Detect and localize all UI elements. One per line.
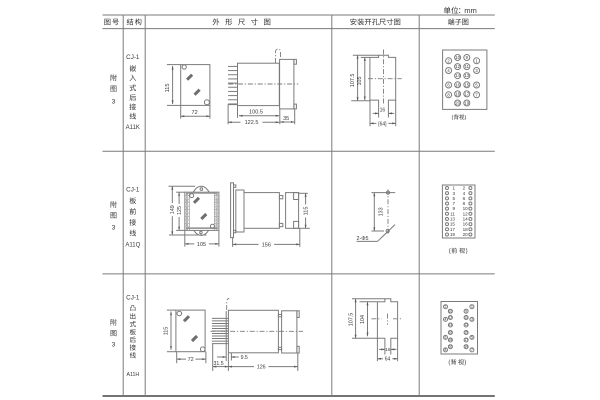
svg-text:[64]: [64] <box>378 121 387 127</box>
svg-text:(: ( <box>448 360 450 366</box>
svg-text:6: 6 <box>447 82 450 87</box>
svg-text:31.5: 31.5 <box>214 361 224 367</box>
svg-text:6: 6 <box>445 336 447 340</box>
svg-text:10: 10 <box>455 55 460 60</box>
svg-text:3: 3 <box>475 68 478 73</box>
svg-text:A11H: A11H <box>127 372 140 378</box>
svg-text:149: 149 <box>170 205 176 214</box>
svg-text:104: 104 <box>360 315 366 324</box>
svg-text:18: 18 <box>455 91 460 96</box>
svg-text:(: ( <box>451 115 453 121</box>
svg-text:3: 3 <box>112 342 116 349</box>
svg-text:15: 15 <box>464 331 468 335</box>
svg-text:13: 13 <box>464 323 468 327</box>
svg-text:12: 12 <box>455 64 460 69</box>
svg-text:7: 7 <box>471 348 473 352</box>
svg-text:72: 72 <box>188 357 194 363</box>
svg-text:115: 115 <box>163 327 169 336</box>
svg-text:14: 14 <box>449 323 453 327</box>
svg-text:115: 115 <box>165 84 171 93</box>
svg-text:107.5: 107.5 <box>350 74 356 88</box>
svg-text:16: 16 <box>455 82 460 87</box>
svg-text:20: 20 <box>455 100 460 105</box>
svg-text:CJ-1: CJ-1 <box>126 187 140 194</box>
svg-text:8: 8 <box>447 92 450 97</box>
svg-text:mm: mm <box>464 6 477 15</box>
svg-text:5: 5 <box>475 82 478 87</box>
svg-text:105: 105 <box>357 77 363 86</box>
svg-text:105: 105 <box>197 242 206 248</box>
svg-text:133: 133 <box>378 207 384 216</box>
svg-text:126: 126 <box>257 365 266 371</box>
svg-text:(: ( <box>449 249 451 255</box>
svg-text:12: 12 <box>449 316 453 320</box>
svg-text:17: 17 <box>464 338 468 342</box>
svg-text:19: 19 <box>464 345 468 349</box>
svg-text:9.5: 9.5 <box>241 355 248 361</box>
svg-text:16: 16 <box>449 331 453 335</box>
svg-text:2: 2 <box>445 305 447 309</box>
svg-text:8: 8 <box>445 348 447 352</box>
svg-text:11: 11 <box>464 316 468 320</box>
svg-text:125: 125 <box>177 206 183 215</box>
svg-text:20: 20 <box>463 232 469 237</box>
svg-text:15: 15 <box>464 82 469 87</box>
svg-text:100.5: 100.5 <box>249 110 263 116</box>
svg-text:5: 5 <box>471 336 473 340</box>
svg-text:1: 1 <box>471 305 473 309</box>
svg-text:7: 7 <box>475 92 478 97</box>
svg-text:19: 19 <box>450 232 456 237</box>
svg-text:3: 3 <box>112 224 116 231</box>
svg-text:14: 14 <box>455 73 460 78</box>
svg-text:3: 3 <box>112 98 116 105</box>
svg-text:1: 1 <box>475 58 478 63</box>
svg-text:35: 35 <box>283 116 289 122</box>
svg-text:CJ-1: CJ-1 <box>126 294 140 301</box>
svg-text:64: 64 <box>385 357 391 363</box>
svg-text:11: 11 <box>465 64 470 69</box>
svg-text:16: 16 <box>385 347 391 353</box>
svg-text:A11Q: A11Q <box>125 243 140 249</box>
svg-text:CJ-1: CJ-1 <box>126 54 140 61</box>
svg-text:10: 10 <box>449 309 453 313</box>
svg-text:9: 9 <box>466 55 469 60</box>
svg-text:18: 18 <box>449 338 453 342</box>
svg-text:4: 4 <box>447 68 450 73</box>
svg-text:4: 4 <box>445 318 447 322</box>
svg-text:115: 115 <box>304 207 310 216</box>
svg-text:9: 9 <box>465 309 467 313</box>
svg-text:16: 16 <box>380 108 386 114</box>
svg-text:2: 2 <box>447 58 450 63</box>
svg-text:20: 20 <box>449 345 453 349</box>
svg-text:156: 156 <box>262 242 271 248</box>
svg-text:): ) <box>464 115 466 121</box>
svg-text:): ) <box>466 249 468 255</box>
svg-text:13: 13 <box>464 73 469 78</box>
svg-text:107.5: 107.5 <box>348 313 354 327</box>
svg-text:122.5: 122.5 <box>245 120 259 126</box>
svg-text:): ) <box>464 360 466 366</box>
svg-text:A11K: A11K <box>126 125 140 131</box>
svg-text:19: 19 <box>464 100 469 105</box>
svg-text:72: 72 <box>192 110 198 116</box>
svg-text:3: 3 <box>471 318 473 322</box>
svg-text:17: 17 <box>464 91 469 96</box>
